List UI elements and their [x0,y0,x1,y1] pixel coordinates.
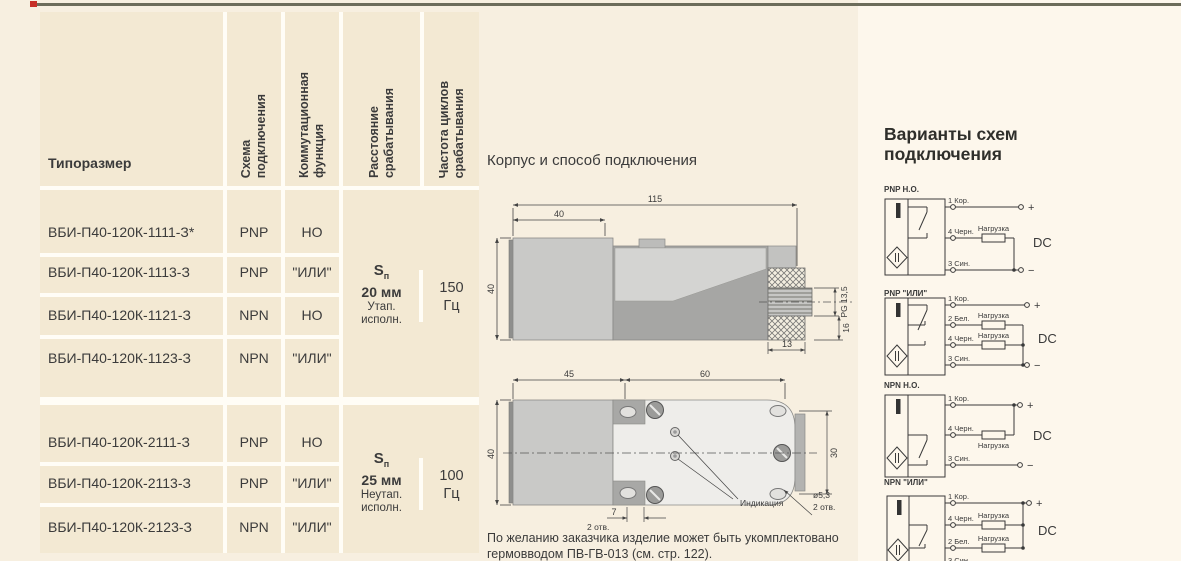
plus-terminal: + [1027,400,1033,412]
side-view-drawing: 115 40 40 PG 13,5 16 13 [487,192,867,364]
header-separator [40,186,479,190]
table-row-model: ВБИ-П40-120К-1123-З [48,348,220,368]
table-row-scheme: NPN [227,305,281,325]
datasheet-page: Типоразмер Схема подключения Коммутацион… [0,0,1181,561]
top-rule [30,3,1181,6]
dim-front-length: 40 [554,209,564,219]
dim-total-length: 115 [648,194,662,204]
sensor-symbol [885,298,945,375]
table-row-scheme: PNP [227,473,281,493]
g2-frequency-cell: 100 Гц [424,468,479,503]
dim-thread: PG 13,5 [839,286,849,317]
dc-label: DC [1033,428,1052,443]
distance-symbol-sub: п [384,271,389,281]
row-separator [40,462,343,466]
group-separator [40,397,479,405]
top-view-drawing: 45 60 40 [487,366,867,534]
wire-label: 1 Кор. [948,492,969,501]
wire-label: 2 Бел. [948,314,970,323]
table-row-scheme: PNP [227,432,281,452]
diagram-pnp-no: PNP Н.О. 1 Кор. 4 Черн. 3 Син. Нагрузка … [880,183,1080,283]
table-row-scheme: NPN [227,348,281,368]
wire-label: 4 Черн. [948,227,974,236]
distance-note: Неутап. исполн. [343,489,420,515]
load-label: Нагрузка [978,511,1010,520]
distance-value: 20 мм [343,284,420,301]
dc-label: DC [1038,331,1057,346]
minus-terminal: − [1027,460,1033,472]
row-separator [40,253,343,257]
table-row-model: ВБИ-П40-120К-1121-З [48,305,220,325]
sensor-body-top [503,400,817,505]
col-header-scheme: Схема подключения [227,12,281,186]
table-row-function: НО [285,222,339,242]
g1-frequency-cell: 150 Гц [424,280,479,315]
col-header-frequency: Частота циклов срабатывания [424,12,479,186]
distance-note: Утап. исполн. [343,301,420,327]
dim-16: 16 [841,323,851,333]
table-row-model: ВБИ-П40-120К-2111-З [48,432,220,452]
wire-label: 4 Черн. [948,514,974,523]
dim-hole-count: 2 отв. [813,502,835,512]
top-rule-red-marker [30,1,37,7]
col-header-frequency-label: Частота циклов срабатывания [437,81,467,178]
table-row-function: "ИЛИ" [285,473,339,493]
table-row-scheme: PNP [227,262,281,282]
distance-symbol: S [374,450,384,467]
schemes-title: Варианты схем подключения [884,124,1018,164]
table-row-model: ВБИ-П40-120К-2123-З [48,517,220,537]
sensor-body-side [509,238,855,340]
dim-13: 13 [782,339,792,349]
drawings-section-title: Корпус и способ подключения [487,152,697,169]
plus-terminal: + [1028,202,1034,214]
table-row-function: НО [285,305,339,325]
dc-label: DC [1033,235,1052,250]
indication-label: Индикация [740,498,784,508]
diagram-title: NPN "ИЛИ" [884,478,928,487]
col-header-size: Типоразмер [48,155,131,171]
row-separator [40,293,343,297]
diagram-title: PNP "ИЛИ" [884,290,927,298]
load-label: Нагрузка [978,534,1010,543]
wire-label: 1 Кор. [948,196,969,205]
load-label: Нагрузка [978,441,1010,450]
wire-label: 1 Кор. [948,294,969,303]
wire-label: 3 Син. [948,556,970,561]
table-row-model: ВБИ-П40-120К-2113-З [48,473,220,493]
g2-distance-cell: Sп 25 мм Неутап. исполн. [343,451,420,515]
table-row-function: "ИЛИ" [285,517,339,537]
dc-label: DC [1038,523,1057,538]
row-separator [40,335,343,339]
dim-spacing: 30 [829,448,839,458]
plus-terminal: + [1036,498,1042,510]
sensor-symbol [885,199,945,275]
col-header-function-label: Коммутационная функция [297,72,327,178]
table-row-scheme: PNP [227,222,281,242]
table-row-model: ВБИ-П40-120К-1113-З [48,262,220,282]
dim-front: 45 [564,369,574,379]
plus-terminal: + [1034,300,1040,312]
diagram-npn-or: NPN "ИЛИ" 1 Кор. 4 Черн. 2 Бел. 3 Син. Н… [880,478,1080,561]
wire-label: 4 Черн. [948,334,974,343]
dim-pitch: 7 [611,507,616,517]
sensor-symbol [885,395,945,477]
table-row-model: ВБИ-П40-120К-1111-З* [48,222,220,242]
table-row-function: НО [285,432,339,452]
minus-terminal: − [1034,360,1040,372]
wire-label: 2 Бел. [948,537,970,546]
diagram-pnp-or: PNP "ИЛИ" 1 Кор. 2 Бел. 4 Черн. 3 Син. Н… [880,290,1080,385]
distance-symbol-sub: п [384,459,389,469]
minus-terminal: − [1028,265,1034,277]
load-label: Нагрузка [978,331,1010,340]
col-header-distance-label: Расстояние срабатывания [367,88,397,178]
diagram-npn-no: NPN Н.О. 1 Кор. 4 Черн. 3 Син. Нагрузка … [880,380,1080,480]
distance-symbol: S [374,262,384,279]
diagram-title: NPN Н.О. [884,381,920,390]
wire-label: 3 Син. [948,259,970,268]
load-label: Нагрузка [978,311,1010,320]
g1-distance-cell: Sп 20 мм Утап. исполн. [343,263,420,327]
dim-height: 40 [487,449,496,459]
wire-label: 3 Син. [948,454,970,463]
dim-hole-dia: ø5,3 [813,490,830,500]
col-header-scheme-label: Схема подключения [239,94,269,178]
wire-label: 4 Черн. [948,424,974,433]
row-separator [40,503,343,507]
load-label: Нагрузка [978,224,1010,233]
col-header-function: Коммутационная функция [285,12,339,186]
distance-value: 25 мм [343,472,420,489]
table-row-function: "ИЛИ" [285,348,339,368]
order-note: По желанию заказчика изделие может быть … [487,531,869,561]
dim-back: 60 [700,369,710,379]
col-header-distance: Расстояние срабатывания [343,12,420,186]
wire-label: 1 Кор. [948,394,969,403]
sensor-symbol [887,496,945,561]
table-row-scheme: NPN [227,517,281,537]
dim-height: 40 [487,284,496,294]
table-row-function: "ИЛИ" [285,262,339,282]
wire-label: 3 Син. [948,354,970,363]
diagram-title: PNP Н.О. [884,185,919,194]
